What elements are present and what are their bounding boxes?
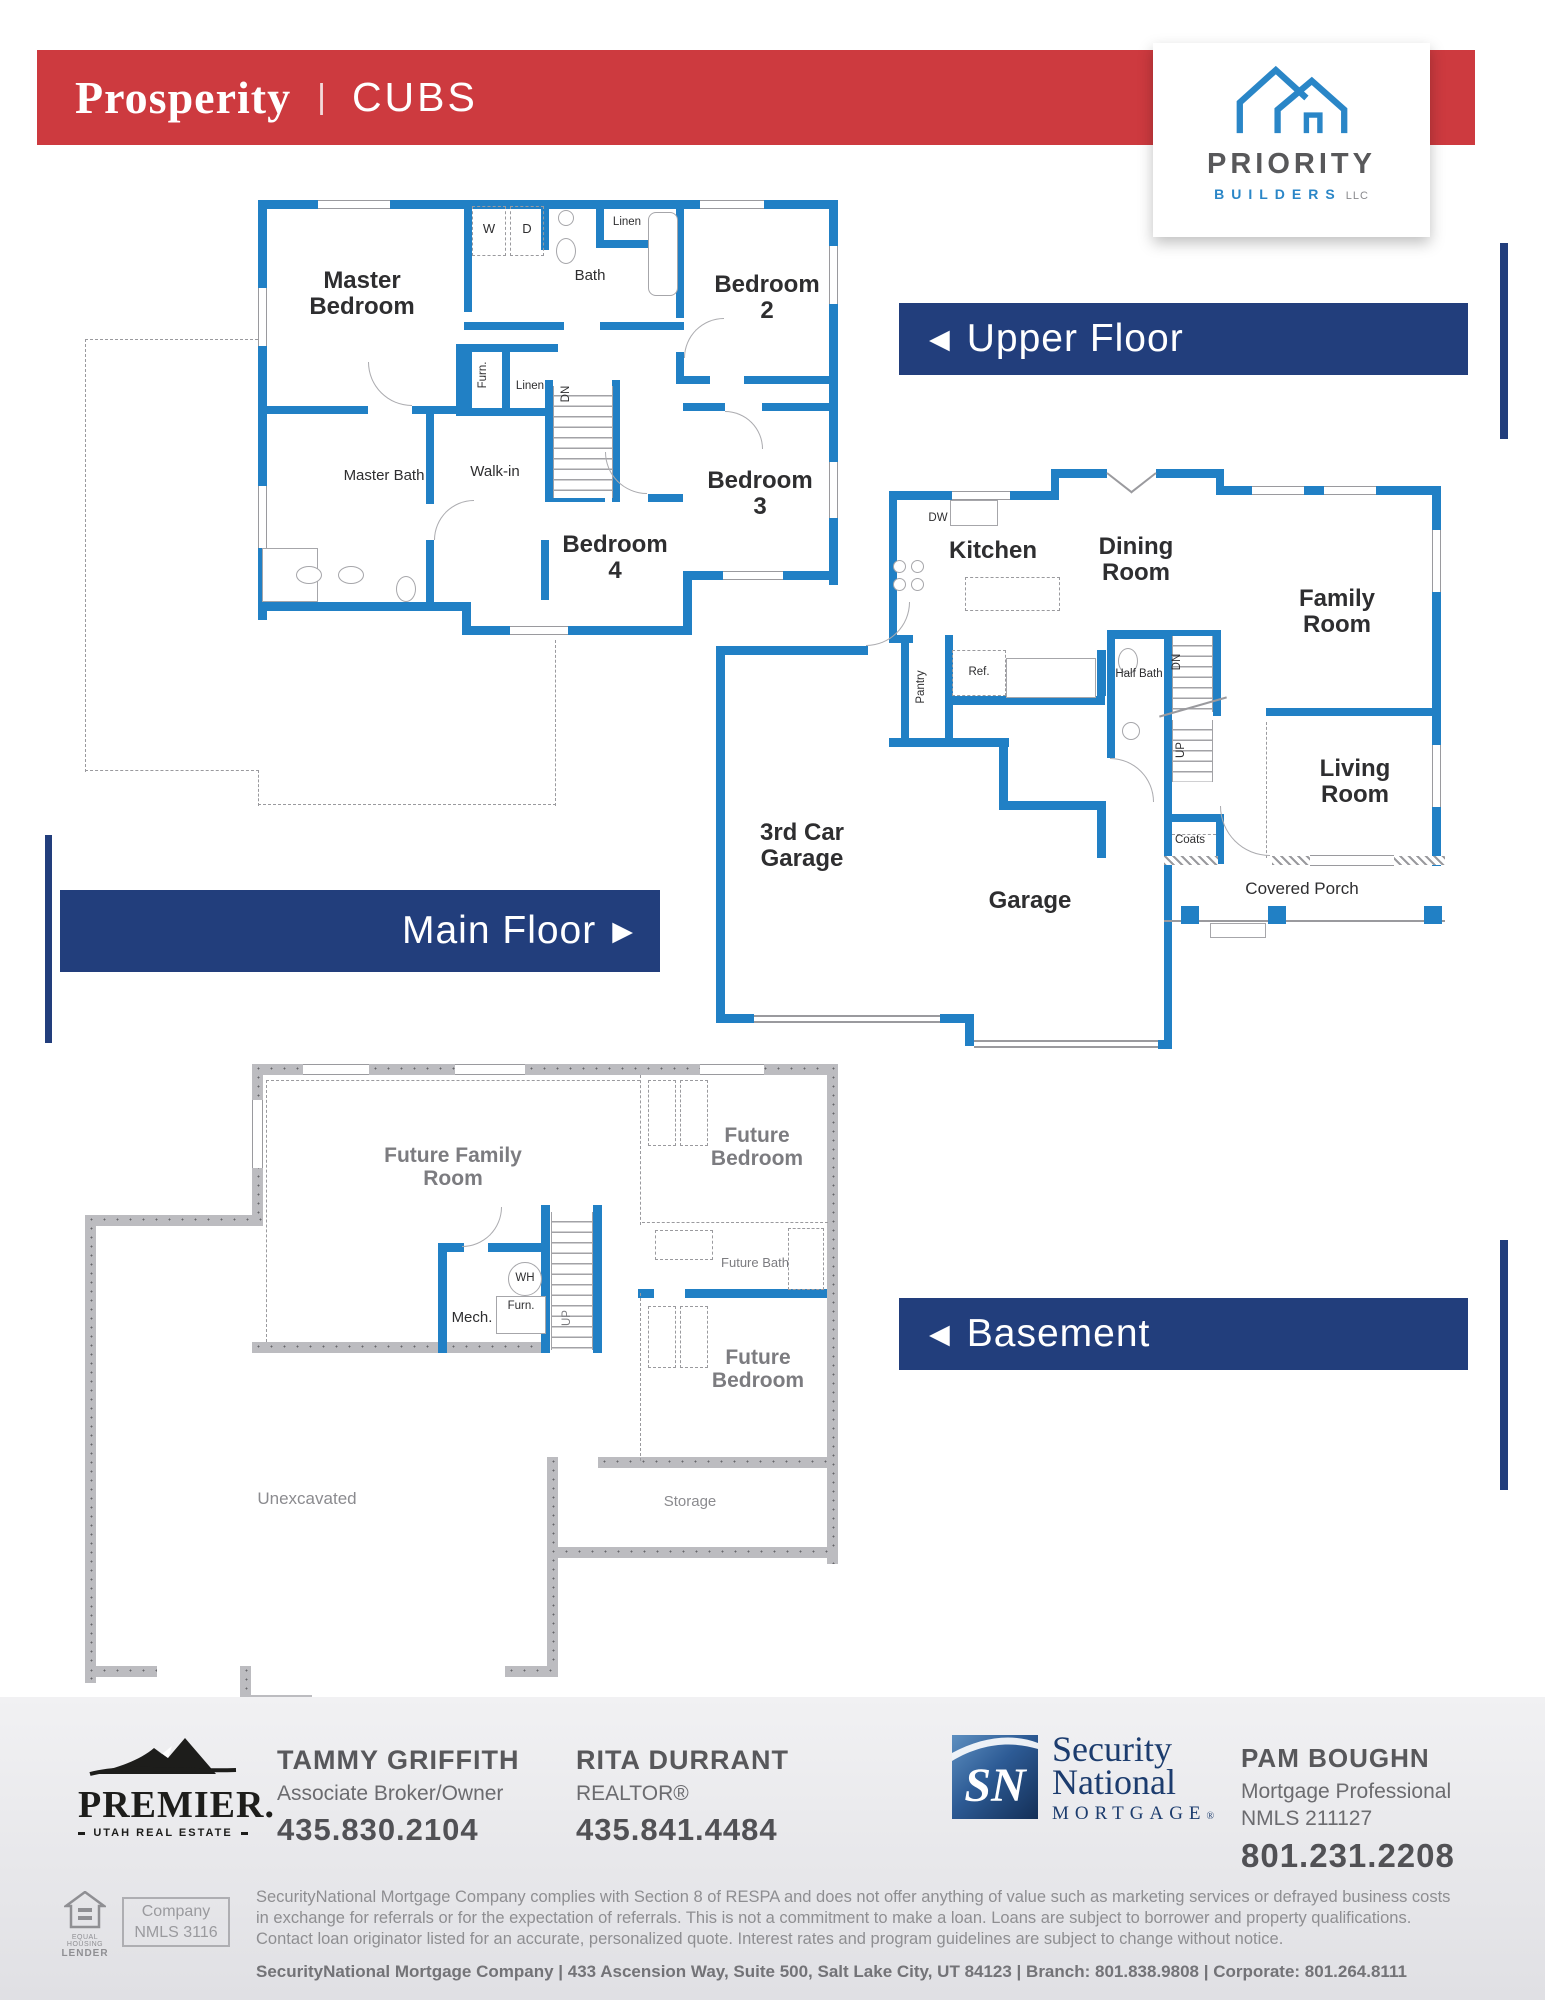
room-label-future-bedroom: Future Bedroom [687,1124,827,1170]
wall [462,626,692,635]
window [829,246,838,304]
builder-sub-text: BUILDERS [1214,186,1342,202]
sink-icon [296,566,322,584]
banner-basement-label: Basement [967,1312,1151,1356]
room-label-bedroom-4: Bedroom 4 [560,532,670,585]
legal-line2: in exchange for referrals or for the exp… [256,1908,1506,1929]
agent-phone: 435.841.4484 [576,1812,789,1848]
legal-line3: Contact loan originator listed for an ac… [256,1929,1506,1950]
wall [505,1666,558,1677]
sn-mortgage: MORTGAGE [1052,1803,1207,1824]
range-burner-icon [911,560,924,573]
window [1432,745,1441,807]
loan-officer-phone: 801.231.2208 [1241,1837,1455,1875]
wall [85,1666,157,1677]
wall [547,1547,558,1677]
label-stairs-dn: DN [560,379,572,409]
projection-outline [555,640,556,806]
wall [1097,801,1106,858]
wall [1156,469,1220,478]
priority-houses-icon [1229,57,1355,144]
window [1252,486,1304,495]
agent-phone: 435.830.2104 [277,1812,519,1848]
room-label-future-bedroom: Future Bedroom [688,1346,828,1392]
room-label-living-room: Living Room [1295,756,1415,809]
room-label-dining-room: Dining Room [1074,534,1198,587]
label-fridge: Ref. [958,666,1000,679]
room-label-master-bedroom: Master Bedroom [287,268,437,321]
wall [547,1547,838,1558]
sink-icon [1122,722,1140,740]
wall [683,571,692,635]
wall [426,540,434,603]
window [455,1064,525,1075]
wall [685,1289,827,1298]
window [258,288,267,346]
room-label-bedroom-3: Bedroom 3 [705,468,815,521]
accent-bar [45,835,52,1043]
window [1324,486,1376,495]
window [1310,855,1394,866]
projection-outline [85,770,259,771]
sink-icon [338,566,364,584]
door-leaf [1130,472,1156,493]
premier-tagline: UTAH REAL ESTATE [93,1827,232,1839]
window [318,200,390,209]
area-label-unexcavated: Unexcavated [237,1490,377,1509]
room-label-bedroom-2: Bedroom 2 [712,272,822,325]
brand-name: Prosperity [75,71,291,124]
loan-officer-name: PAM BOUGHN [1241,1743,1455,1774]
porch-post [1181,906,1199,924]
door-arc [1220,806,1270,856]
wall [545,380,553,502]
company-nmls-line2: NMLS 3116 [124,1923,228,1944]
wall [648,494,683,502]
room-label-bath: Bath [560,268,620,285]
header-separator: | [317,78,326,117]
agent-card-rita: RITA DURRANT REALTOR® 435.841.4484 [576,1745,789,1848]
insulation-line [266,1080,267,1342]
sn-line2: National [1052,1766,1214,1799]
kitchen-sink-icon [950,500,998,526]
flyer-page: Prosperity | CUBS PRIORITY BUILDERS LLC [0,0,1545,2000]
banner-basement: ◀ Basement [899,1298,1468,1370]
premier-tagline-row: UTAH REAL ESTATE [78,1827,248,1839]
wall [716,1014,754,1023]
label-stairs-dn: DN [1171,647,1183,677]
wall [1266,708,1440,716]
room-label-mech: Mech. [441,1310,503,1327]
builder-logo-card: PRIORITY BUILDERS LLC [1153,43,1430,237]
wall [1051,469,1059,500]
tagline-dash [241,1832,248,1835]
loan-officer-nmls: NMLS 211127 [1241,1807,1455,1831]
wall [464,348,472,414]
door-arc [1110,758,1154,802]
premier-name: PREMIER. [78,1783,248,1827]
insulation-line [266,1080,640,1081]
label-stairs-up: UP [561,1303,573,1333]
range-burner-icon [893,560,906,573]
wall [464,322,564,330]
label-linen: Linen [505,380,555,393]
wall [456,408,558,416]
premier-mountains-icon [78,1734,248,1783]
wall [258,406,368,414]
wall [85,1215,96,1683]
wall [426,414,434,504]
range-burner-icon [893,578,906,591]
room-label-future-bath: Future Bath [713,1256,797,1270]
wall [258,602,470,611]
window [700,1064,764,1075]
island-box [965,577,1060,611]
label-dishwasher: DW [923,512,953,525]
wall [593,1205,602,1353]
porch-post [1268,906,1286,924]
accent-bar [1500,243,1508,439]
label-coats: Coats [1168,834,1212,847]
window [510,626,568,635]
room-label-covered-porch: Covered Porch [1222,880,1382,899]
wall [762,403,838,411]
builder-llc: LLC [1342,190,1369,202]
wall [456,344,464,416]
wall [1051,469,1107,478]
projection-outline [258,804,556,805]
legal-disclaimer: SecurityNational Mortgage Company compli… [256,1887,1506,1950]
right-arrow-icon: ▶ [612,918,634,945]
window [252,1100,263,1168]
label-linen: Linen [597,216,657,229]
label-dryer: D [517,222,537,236]
wall [438,1243,464,1252]
counter-box [1006,658,1096,698]
legal-line1: SecurityNational Mortgage Company compli… [256,1887,1506,1908]
area-label-storage: Storage [640,1494,740,1511]
builder-sub: BUILDERS LLC [1214,186,1369,202]
room-label-pantry: Pantry [915,658,929,716]
window [829,462,838,518]
plan-name: CUBS [352,74,478,121]
window [1432,530,1441,592]
future-closet [648,1306,676,1368]
wall [1164,814,1224,822]
projection-outline [85,339,258,340]
future-vanity [655,1230,713,1260]
loan-officer-title: Mortgage Professional [1241,1780,1455,1804]
toilet-icon [556,238,576,264]
room-label-garage: Garage [970,888,1090,914]
wall [716,646,868,655]
door-arc [434,500,474,540]
wall [85,1215,263,1226]
porch-edge [1164,920,1445,922]
security-national-wordmark: Security National MORTGAGE® [1052,1733,1214,1825]
wall [541,540,549,600]
agent-name: TAMMY GRIFFITH [277,1745,519,1776]
wall [889,738,1009,747]
equal-housing-logo: EQUAL HOUSING LENDER [60,1891,110,1959]
banner-main-label: Main Floor [402,909,596,953]
label-furnace: Furn. [496,1300,546,1313]
wall [999,738,1008,810]
door-arc [462,1207,502,1247]
window [723,571,783,580]
sn-line3: MORTGAGE® [1052,1803,1214,1825]
wall [547,1457,558,1557]
window [303,1064,369,1075]
wall [600,322,684,330]
wall [683,403,725,411]
wall [1213,630,1221,716]
wall [744,376,838,384]
left-arrow-icon: ◀ [929,326,951,353]
wall [676,376,710,384]
wall [488,1243,548,1252]
banner-upper-floor: ◀ Upper Floor [899,303,1468,375]
window [952,491,1010,500]
left-arrow-icon: ◀ [929,1321,951,1348]
label-water-heater: WH [508,1272,542,1285]
future-wall [642,1222,828,1223]
room-label-3rd-car-garage: 3rd Car Garage [740,820,864,873]
label-stairs-up: UP [1175,735,1187,765]
premier-logo: PREMIER. UTAH REAL ESTATE [78,1734,248,1839]
window [700,200,764,209]
tagline-dash [78,1832,85,1835]
wall [901,635,909,738]
range-burner-icon [911,578,924,591]
sink-icon [558,210,574,226]
door-arc [725,411,763,449]
equal-housing-house-icon [64,1891,106,1929]
door-arc [368,362,412,406]
future-wall [640,1075,641,1225]
label-furnace: Furn. [477,353,491,397]
future-wall [640,1293,641,1461]
wall [999,801,1105,810]
wall [1107,630,1115,758]
security-national-logo-icon: SN [952,1735,1038,1819]
agent-name: RITA DURRANT [576,1745,789,1776]
door-leaf [1106,472,1132,493]
wall [716,646,725,1023]
wall [1097,650,1106,696]
loan-officer-card: PAM BOUGHN Mortgage Professional NMLS 21… [1241,1743,1455,1875]
room-label-master-bath: Master Bath [329,468,439,485]
agent-title: Associate Broker/Owner [277,1782,519,1806]
window [258,486,267,548]
future-closet [648,1080,676,1146]
wall [827,1064,838,1564]
wall [965,1014,974,1046]
garage-door [974,1040,1158,1048]
banner-main-floor: Main Floor ▶ [60,890,660,972]
toilet-icon [396,576,416,602]
svg-text:SN: SN [964,1759,1028,1812]
label-washer: W [479,222,499,236]
agent-card-tammy: TAMMY GRIFFITH Associate Broker/Owner 43… [277,1745,519,1848]
porch-post [1424,906,1442,924]
wall [252,1342,547,1353]
builder-name: PRIORITY [1207,148,1376,181]
wall [598,1457,838,1468]
room-label-half-bath: Half Bath [1112,668,1166,681]
company-address-line: SecurityNational Mortgage Company | 433 … [256,1962,1526,1982]
room-label-kitchen: Kitchen [933,538,1053,564]
company-nmls-line1: Company [124,1902,228,1923]
porch-step [1210,923,1266,938]
equal-housing-line2: LENDER [60,1948,110,1959]
banner-upper-label: Upper Floor [967,317,1184,361]
room-label-family-room: Family Room [1277,586,1397,639]
porch-wall [1164,856,1218,865]
company-nmls-box: Company NMLS 3116 [122,1897,230,1947]
sn-reg: ® [1207,1811,1215,1822]
wall [464,200,472,312]
room-label-walk-in: Walk-in [453,464,537,481]
projection-outline [258,770,259,806]
garage-door [754,1015,940,1023]
projection-outline [85,339,86,772]
wall [438,1243,447,1353]
accent-bar [1500,1240,1508,1490]
room-label-future-family-room: Future Family Room [371,1144,535,1190]
agent-title: REALTOR® [576,1782,789,1806]
equal-housing-line1: EQUAL HOUSING [60,1934,110,1948]
